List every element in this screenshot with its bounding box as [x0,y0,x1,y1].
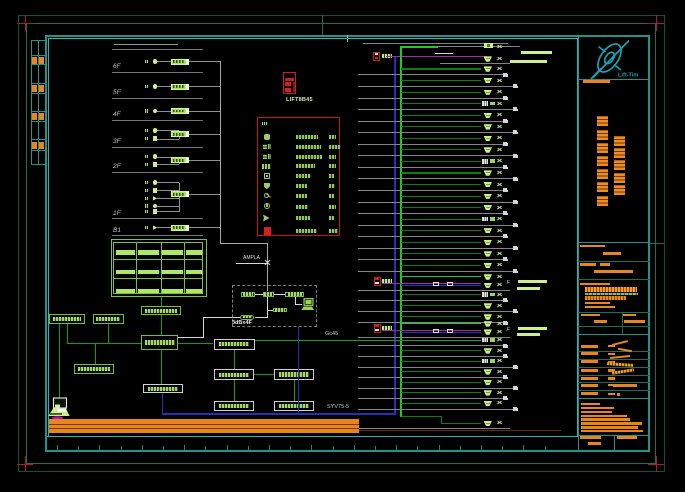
svg-text:Lift-Tim: Lift-Tim [618,73,638,79]
